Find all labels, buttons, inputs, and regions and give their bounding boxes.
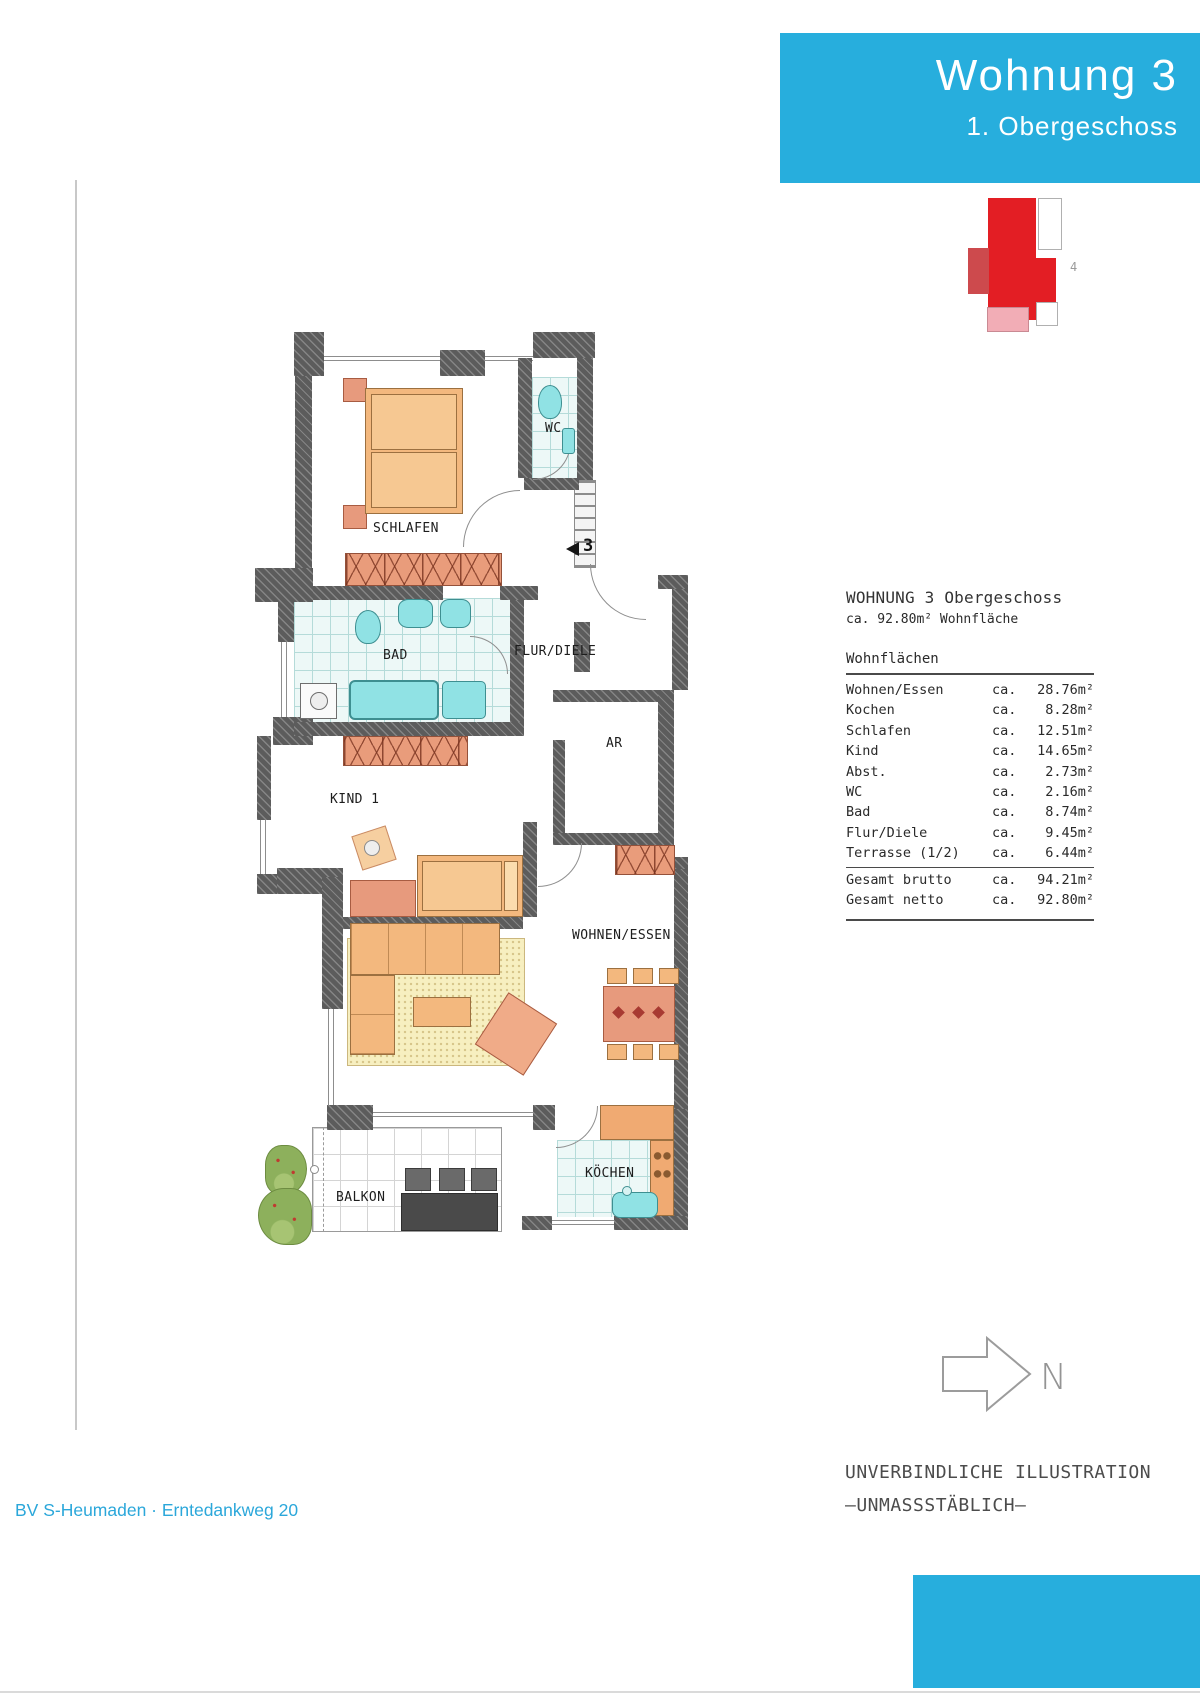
dining-chair (659, 968, 679, 984)
footer-accent-block (913, 1575, 1200, 1688)
wall (257, 874, 277, 894)
row-value: 6.44m² (1030, 845, 1094, 861)
room-label-wc: WC (545, 421, 561, 436)
nightstand (343, 505, 367, 529)
site-neighbor-outline (1038, 198, 1062, 250)
table-row: Schlafenca.12.51m² (846, 723, 1094, 743)
room-label-schlafen: SCHLAFEN (373, 521, 439, 536)
entrance-number: 3 (583, 536, 593, 556)
balcony-table (401, 1193, 498, 1231)
dining-chair (633, 968, 653, 984)
row-ca: ca. (992, 845, 1030, 861)
balcony-chair (471, 1168, 497, 1191)
row-ca: ca. (992, 764, 1030, 780)
dining-chair (659, 1044, 679, 1060)
balcony-chair (405, 1168, 431, 1191)
room-label-wohnen-essen: WOHNEN/ESSEN (572, 928, 671, 943)
sofa (350, 923, 500, 975)
room-label-kochen: KÖCHEN (585, 1166, 634, 1181)
wall (510, 600, 524, 722)
wall (533, 1105, 555, 1130)
footer-project-text: BV S-Heumaden · Erntedankweg 20 (15, 1500, 298, 1521)
page-subtitle: 1. Obergeschoss (780, 111, 1178, 142)
row-value: 8.74m² (1030, 804, 1094, 820)
wall (523, 822, 537, 917)
coffee-table (413, 997, 471, 1027)
wall (312, 586, 443, 600)
wall (577, 358, 593, 480)
row-label: Wohnen/Essen (846, 682, 992, 698)
room-label-kind: KIND 1 (330, 792, 379, 807)
site-building-muted (968, 248, 989, 294)
total-value: 94.21m² (1030, 872, 1094, 888)
row-label: Bad (846, 804, 992, 820)
row-label: Abst. (846, 764, 992, 780)
site-neighbor-outline-2 (1036, 302, 1058, 326)
dining-chair (633, 1044, 653, 1060)
row-ca: ca. (992, 784, 1030, 800)
document-page: Wohnung 3 1. Obergeschoss 4 (0, 0, 1200, 1697)
wall (614, 1216, 688, 1230)
room-label-balkon: BALKON (336, 1190, 385, 1205)
door-arc (590, 564, 646, 620)
row-value: 12.51m² (1030, 723, 1094, 739)
mattress (371, 452, 457, 508)
page-title: Wohnung 3 (780, 53, 1178, 99)
row-label: Kind (846, 743, 992, 759)
table-row: Kindca.14.65m² (846, 743, 1094, 763)
window (281, 642, 287, 717)
table-row: Terrasse (1/2)ca.6.44m² (846, 845, 1094, 865)
north-label: N (1040, 1357, 1067, 1398)
row-value: 2.73m² (1030, 764, 1094, 780)
wall (322, 877, 343, 1009)
table-row: Wohnen/Essenca.28.76m² (846, 682, 1094, 702)
pillow (504, 861, 518, 911)
table-total-row: Gesamt bruttoca.94.21m² (846, 872, 1094, 892)
disclaimer-line1: UNVERBINDLICHE ILLUSTRATION (845, 1456, 1151, 1489)
wc-sink (562, 428, 575, 454)
area-table-section-heading: Wohnflächen (846, 651, 1094, 667)
wall (674, 869, 688, 1109)
row-value: 28.76m² (1030, 682, 1094, 698)
wall (294, 332, 324, 376)
wall (518, 358, 532, 478)
wall (658, 690, 674, 857)
entrance-arrow-icon (566, 542, 579, 556)
washing-machine (300, 683, 337, 719)
window (552, 1220, 614, 1225)
dining-chair (607, 968, 627, 984)
kitchen-sink (612, 1192, 658, 1218)
washer-drum-icon (310, 692, 328, 710)
wardrobe (615, 845, 675, 875)
toilet (538, 385, 562, 419)
disclaimer-line2: –UNMASSSTÄBLICH– (845, 1489, 1151, 1522)
shower (442, 681, 486, 719)
bath-sink (398, 599, 433, 628)
total-ca: ca. (992, 872, 1030, 888)
window (260, 820, 266, 876)
table-row: Badca.8.74m² (846, 804, 1094, 824)
total-label: Gesamt brutto (846, 872, 992, 888)
row-ca: ca. (992, 682, 1030, 698)
row-ca: ca. (992, 804, 1030, 820)
table-decor-icon (612, 1006, 625, 1019)
site-terrace-pink (987, 307, 1029, 332)
wall (278, 602, 294, 642)
site-building-highlight (988, 198, 1036, 320)
north-arrow-icon: N (940, 1336, 1100, 1416)
site-unit-number: 4 (1070, 260, 1077, 274)
table-decor-icon (652, 1006, 665, 1019)
page-bottom-rule (0, 1691, 1200, 1693)
kitchen-counter (600, 1105, 674, 1140)
room-label-flur-diele: FLUR/DIELE (514, 644, 596, 659)
area-table-rows: Wohnen/Essenca.28.76m² Kochenca.8.28m² S… (846, 682, 1094, 866)
wall (674, 1109, 688, 1217)
table-row: Kochenca.8.28m² (846, 702, 1094, 722)
bath-sink (440, 599, 471, 628)
row-label: Schlafen (846, 723, 992, 739)
dining-chair (607, 1044, 627, 1060)
wall (672, 575, 688, 690)
wardrobe (345, 553, 502, 586)
balcony-chair (439, 1168, 465, 1191)
row-label: Flur/Diele (846, 825, 992, 841)
room-label-bad: BAD (383, 648, 408, 663)
sideboard (350, 880, 416, 917)
divider (846, 919, 1094, 921)
area-table-title: WOHNUNG 3 Obergeschoss (846, 588, 1094, 607)
disclaimer: UNVERBINDLICHE ILLUSTRATION –UNMASSSTÄBL… (845, 1456, 1151, 1523)
table-total-row: Gesamt nettoca.92.80m² (846, 892, 1094, 912)
row-label: Terrasse (1/2) (846, 845, 992, 861)
window (373, 1112, 533, 1117)
cooktop-icon (652, 1148, 672, 1184)
row-label: WC (846, 784, 992, 800)
wall (553, 740, 565, 833)
wall (295, 376, 312, 570)
area-table: WOHNUNG 3 Obergeschoss ca. 92.80m² Wohnf… (846, 588, 1094, 921)
nightstand (343, 378, 367, 402)
wall (257, 736, 271, 820)
row-ca: ca. (992, 743, 1030, 759)
wardrobe (343, 736, 468, 766)
door-arc (463, 490, 520, 547)
total-label: Gesamt netto (846, 892, 992, 908)
area-table-subtitle: ca. 92.80m² Wohnfläche (846, 612, 1094, 627)
left-margin-rule (75, 180, 77, 1430)
row-label: Kochen (846, 702, 992, 718)
wall (294, 722, 524, 736)
small-pot (310, 1165, 319, 1174)
divider (846, 673, 1094, 675)
wall (440, 350, 485, 376)
row-ca: ca. (992, 825, 1030, 841)
chair-seat (364, 840, 380, 856)
balcony-division-line (323, 1127, 324, 1232)
row-value: 8.28m² (1030, 702, 1094, 718)
total-ca: ca. (992, 892, 1030, 908)
wall (553, 690, 674, 702)
sofa-chaise (350, 975, 395, 1055)
row-ca: ca. (992, 723, 1030, 739)
child-mattress (422, 861, 502, 911)
site-key-plan: 4 (930, 190, 1095, 335)
wall (255, 568, 313, 602)
door-arc (538, 843, 582, 887)
toilet (355, 610, 381, 644)
header-box: Wohnung 3 1. Obergeschoss (780, 33, 1200, 183)
row-value: 14.65m² (1030, 743, 1094, 759)
row-value: 2.16m² (1030, 784, 1094, 800)
faucet-icon (622, 1186, 632, 1196)
window (328, 1009, 334, 1105)
dining-table (603, 986, 675, 1042)
total-value: 92.80m² (1030, 892, 1094, 908)
bathtub (349, 680, 439, 720)
wall (533, 332, 595, 358)
floor-plan: 3 (250, 330, 695, 1240)
wall (327, 1105, 373, 1130)
wall (658, 575, 688, 589)
plant (258, 1188, 312, 1245)
table-row: Abst.ca.2.73m² (846, 764, 1094, 784)
row-ca: ca. (992, 702, 1030, 718)
room-label-ar: AR (606, 736, 622, 751)
row-value: 9.45m² (1030, 825, 1094, 841)
window (324, 356, 440, 361)
wall (522, 1216, 552, 1230)
table-row: Flur/Dieleca.9.45m² (846, 825, 1094, 845)
divider (846, 867, 1094, 868)
mattress (371, 394, 457, 450)
table-row: WCca.2.16m² (846, 784, 1094, 804)
table-decor-icon (632, 1006, 645, 1019)
wall (500, 586, 538, 600)
